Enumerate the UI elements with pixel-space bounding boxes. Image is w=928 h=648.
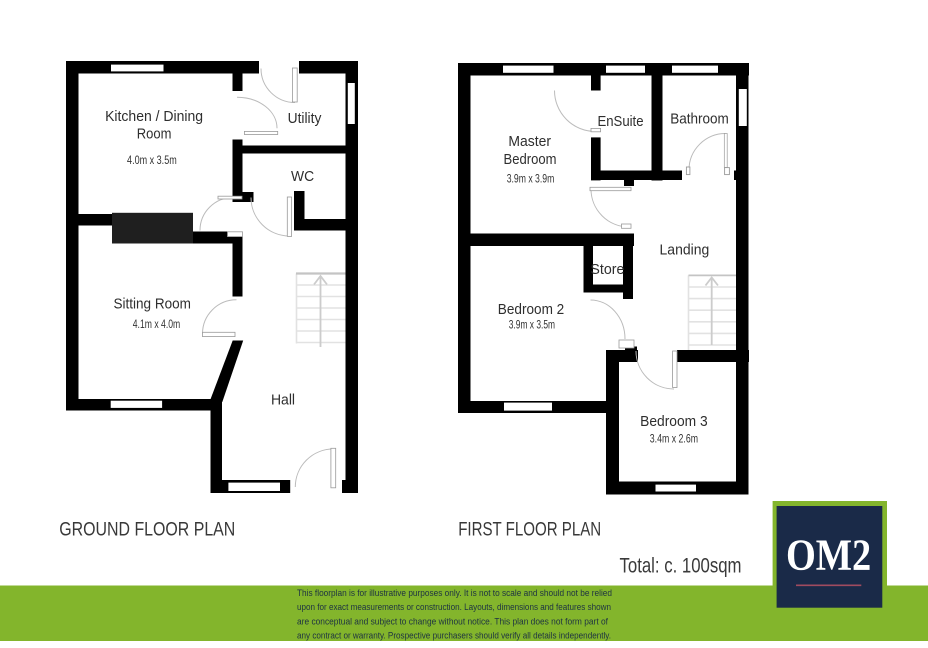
svg-text:4.1m x 4.0m: 4.1m x 4.0m [133, 317, 181, 331]
svg-text:Bedroom: Bedroom [504, 151, 557, 168]
svg-text:WC: WC [291, 168, 314, 185]
svg-text:Utility: Utility [288, 110, 322, 127]
svg-text:OM2: OM2 [786, 531, 871, 580]
svg-text:Room: Room [137, 126, 172, 143]
svg-text:Landing: Landing [660, 241, 710, 258]
svg-text:FIRST FLOOR PLAN: FIRST FLOOR PLAN [458, 518, 601, 540]
svg-text:Kitchen / Dining: Kitchen / Dining [105, 108, 203, 125]
svg-text:Sitting Room: Sitting Room [113, 296, 191, 313]
svg-text:This floorplan is for illustra: This floorplan is for illustrative purpo… [297, 588, 612, 598]
svg-text:3.4m x 2.6m: 3.4m x 2.6m [650, 431, 698, 445]
svg-text:Hall: Hall [271, 392, 295, 409]
svg-text:GROUND FLOOR PLAN: GROUND FLOOR PLAN [59, 518, 235, 540]
svg-text:3.9m x 3.5m: 3.9m x 3.5m [509, 318, 555, 332]
svg-text:Total: c. 100sqm: Total: c. 100sqm [620, 555, 742, 578]
svg-text:EnSuite: EnSuite [597, 113, 643, 130]
svg-text:any contract or warranty. Pros: any contract or warranty. Prospective pu… [297, 631, 611, 641]
svg-text:Bathroom: Bathroom [670, 111, 729, 128]
svg-text:Store: Store [590, 261, 624, 278]
svg-text:3.9m x 3.9m: 3.9m x 3.9m [507, 171, 555, 185]
svg-text:upon for exact measurements or: upon for exact measurements or construct… [297, 602, 611, 612]
svg-text:are conceptual and subject to: are conceptual and subject to change wit… [297, 616, 609, 626]
svg-text:4.0m x 3.5m: 4.0m x 3.5m [127, 153, 177, 167]
svg-text:Master: Master [508, 133, 551, 150]
svg-text:Bedroom 2: Bedroom 2 [498, 301, 564, 318]
svg-text:Bedroom 3: Bedroom 3 [640, 413, 708, 430]
